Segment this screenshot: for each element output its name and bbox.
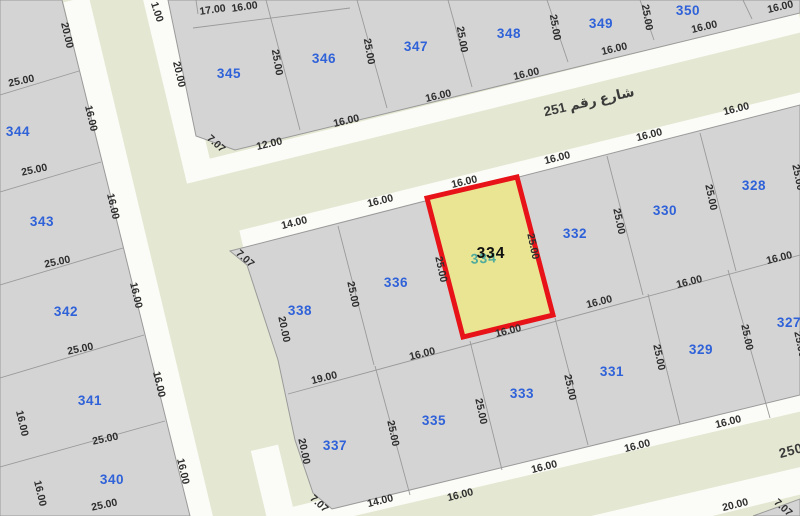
parcel-334-number[interactable]: 334 — [477, 245, 506, 262]
parcel-number-347[interactable]: 347 — [404, 39, 428, 54]
parcel-number-346[interactable]: 346 — [312, 51, 336, 66]
parcel-number-340[interactable]: 340 — [100, 472, 124, 487]
parcel-number-336[interactable]: 336 — [384, 275, 408, 290]
parcel-number-327[interactable]: 327 — [777, 315, 800, 330]
parcel-number-330[interactable]: 330 — [653, 203, 677, 218]
parcel-number-350[interactable]: 350 — [676, 3, 700, 18]
parcel-number-343[interactable]: 343 — [30, 214, 54, 229]
map-canvas: 334 334 20.0025.0016.0025.0016.0025.0016… — [0, 0, 800, 516]
cadastral-map: 334 334 20.0025.0016.0025.0016.0025.0016… — [0, 0, 800, 516]
parcel-number-342[interactable]: 342 — [54, 304, 78, 319]
parcel-number-341[interactable]: 341 — [78, 393, 102, 408]
parcel-number-331[interactable]: 331 — [600, 364, 624, 379]
parcel-number-333[interactable]: 333 — [510, 386, 534, 401]
parcel-number-332[interactable]: 332 — [563, 226, 587, 241]
parcel-number-335[interactable]: 335 — [422, 413, 446, 428]
parcel-number-329[interactable]: 329 — [689, 342, 713, 357]
parcel-number-337[interactable]: 337 — [323, 438, 347, 453]
parcel-number-348[interactable]: 348 — [497, 26, 521, 41]
parcel-number-338[interactable]: 338 — [288, 303, 312, 318]
parcel-number-349[interactable]: 349 — [589, 16, 613, 31]
parcel-number-328[interactable]: 328 — [742, 178, 766, 193]
parcel-number-345[interactable]: 345 — [217, 66, 241, 81]
parcel-number-344[interactable]: 344 — [6, 124, 30, 139]
